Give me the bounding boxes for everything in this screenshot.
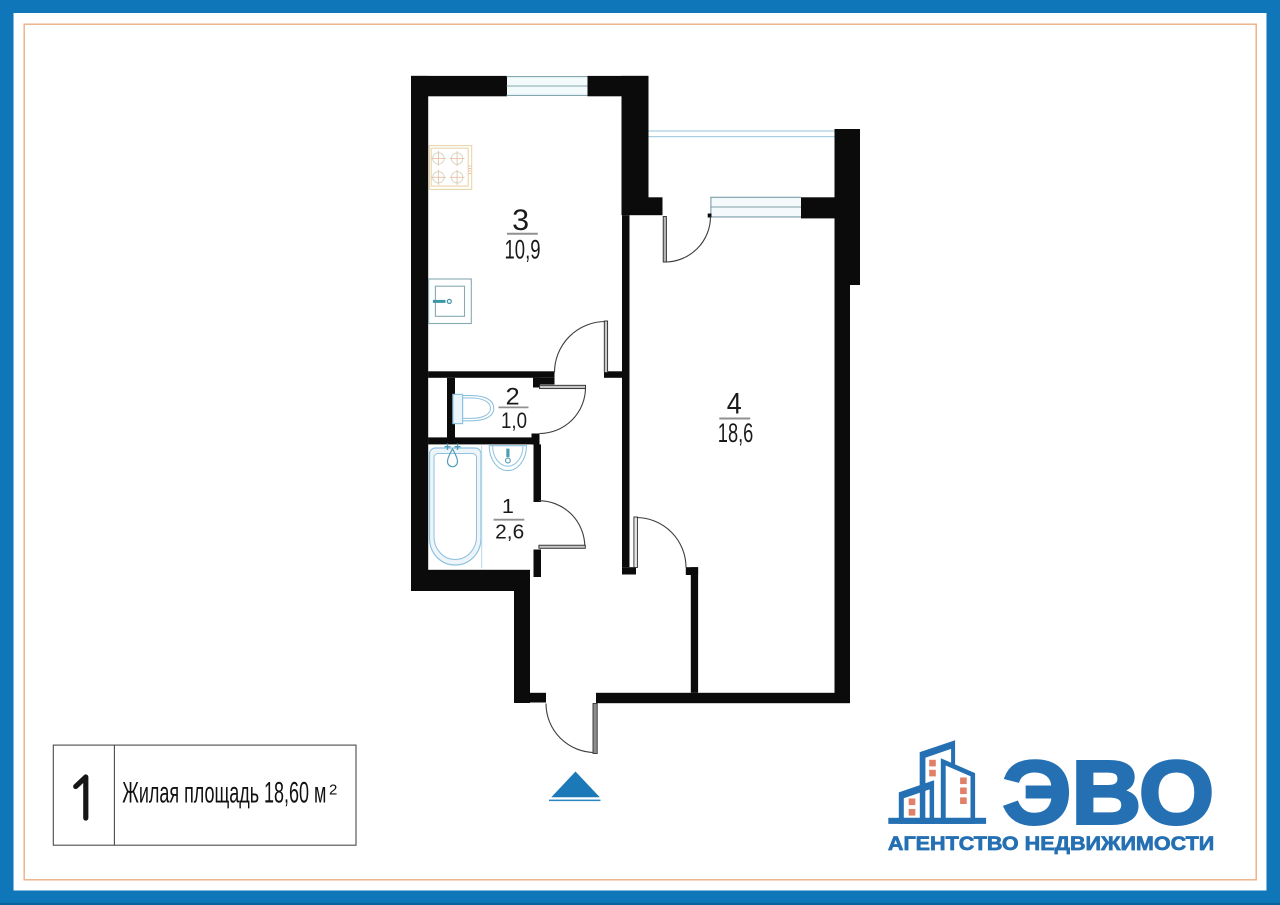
svg-text:2: 2	[506, 384, 520, 411]
svg-text:18,6: 18,6	[718, 418, 754, 448]
svg-text:1,0: 1,0	[501, 408, 527, 433]
svg-text:Жилая площадь 18,60 м: Жилая площадь 18,60 м	[122, 777, 326, 810]
svg-text:ЭВО: ЭВО	[1003, 743, 1215, 843]
svg-text:АГЕНТСТВО НЕДВИЖИМОСТИ: АГЕНТСТВО НЕДВИЖИМОСТИ	[888, 834, 1214, 855]
svg-text:3: 3	[512, 204, 529, 237]
svg-text:4: 4	[727, 388, 742, 421]
svg-text:2,6: 2,6	[495, 522, 524, 544]
svg-text:10,9: 10,9	[505, 234, 541, 264]
svg-text:2: 2	[329, 782, 337, 799]
svg-text:1: 1	[502, 496, 514, 518]
